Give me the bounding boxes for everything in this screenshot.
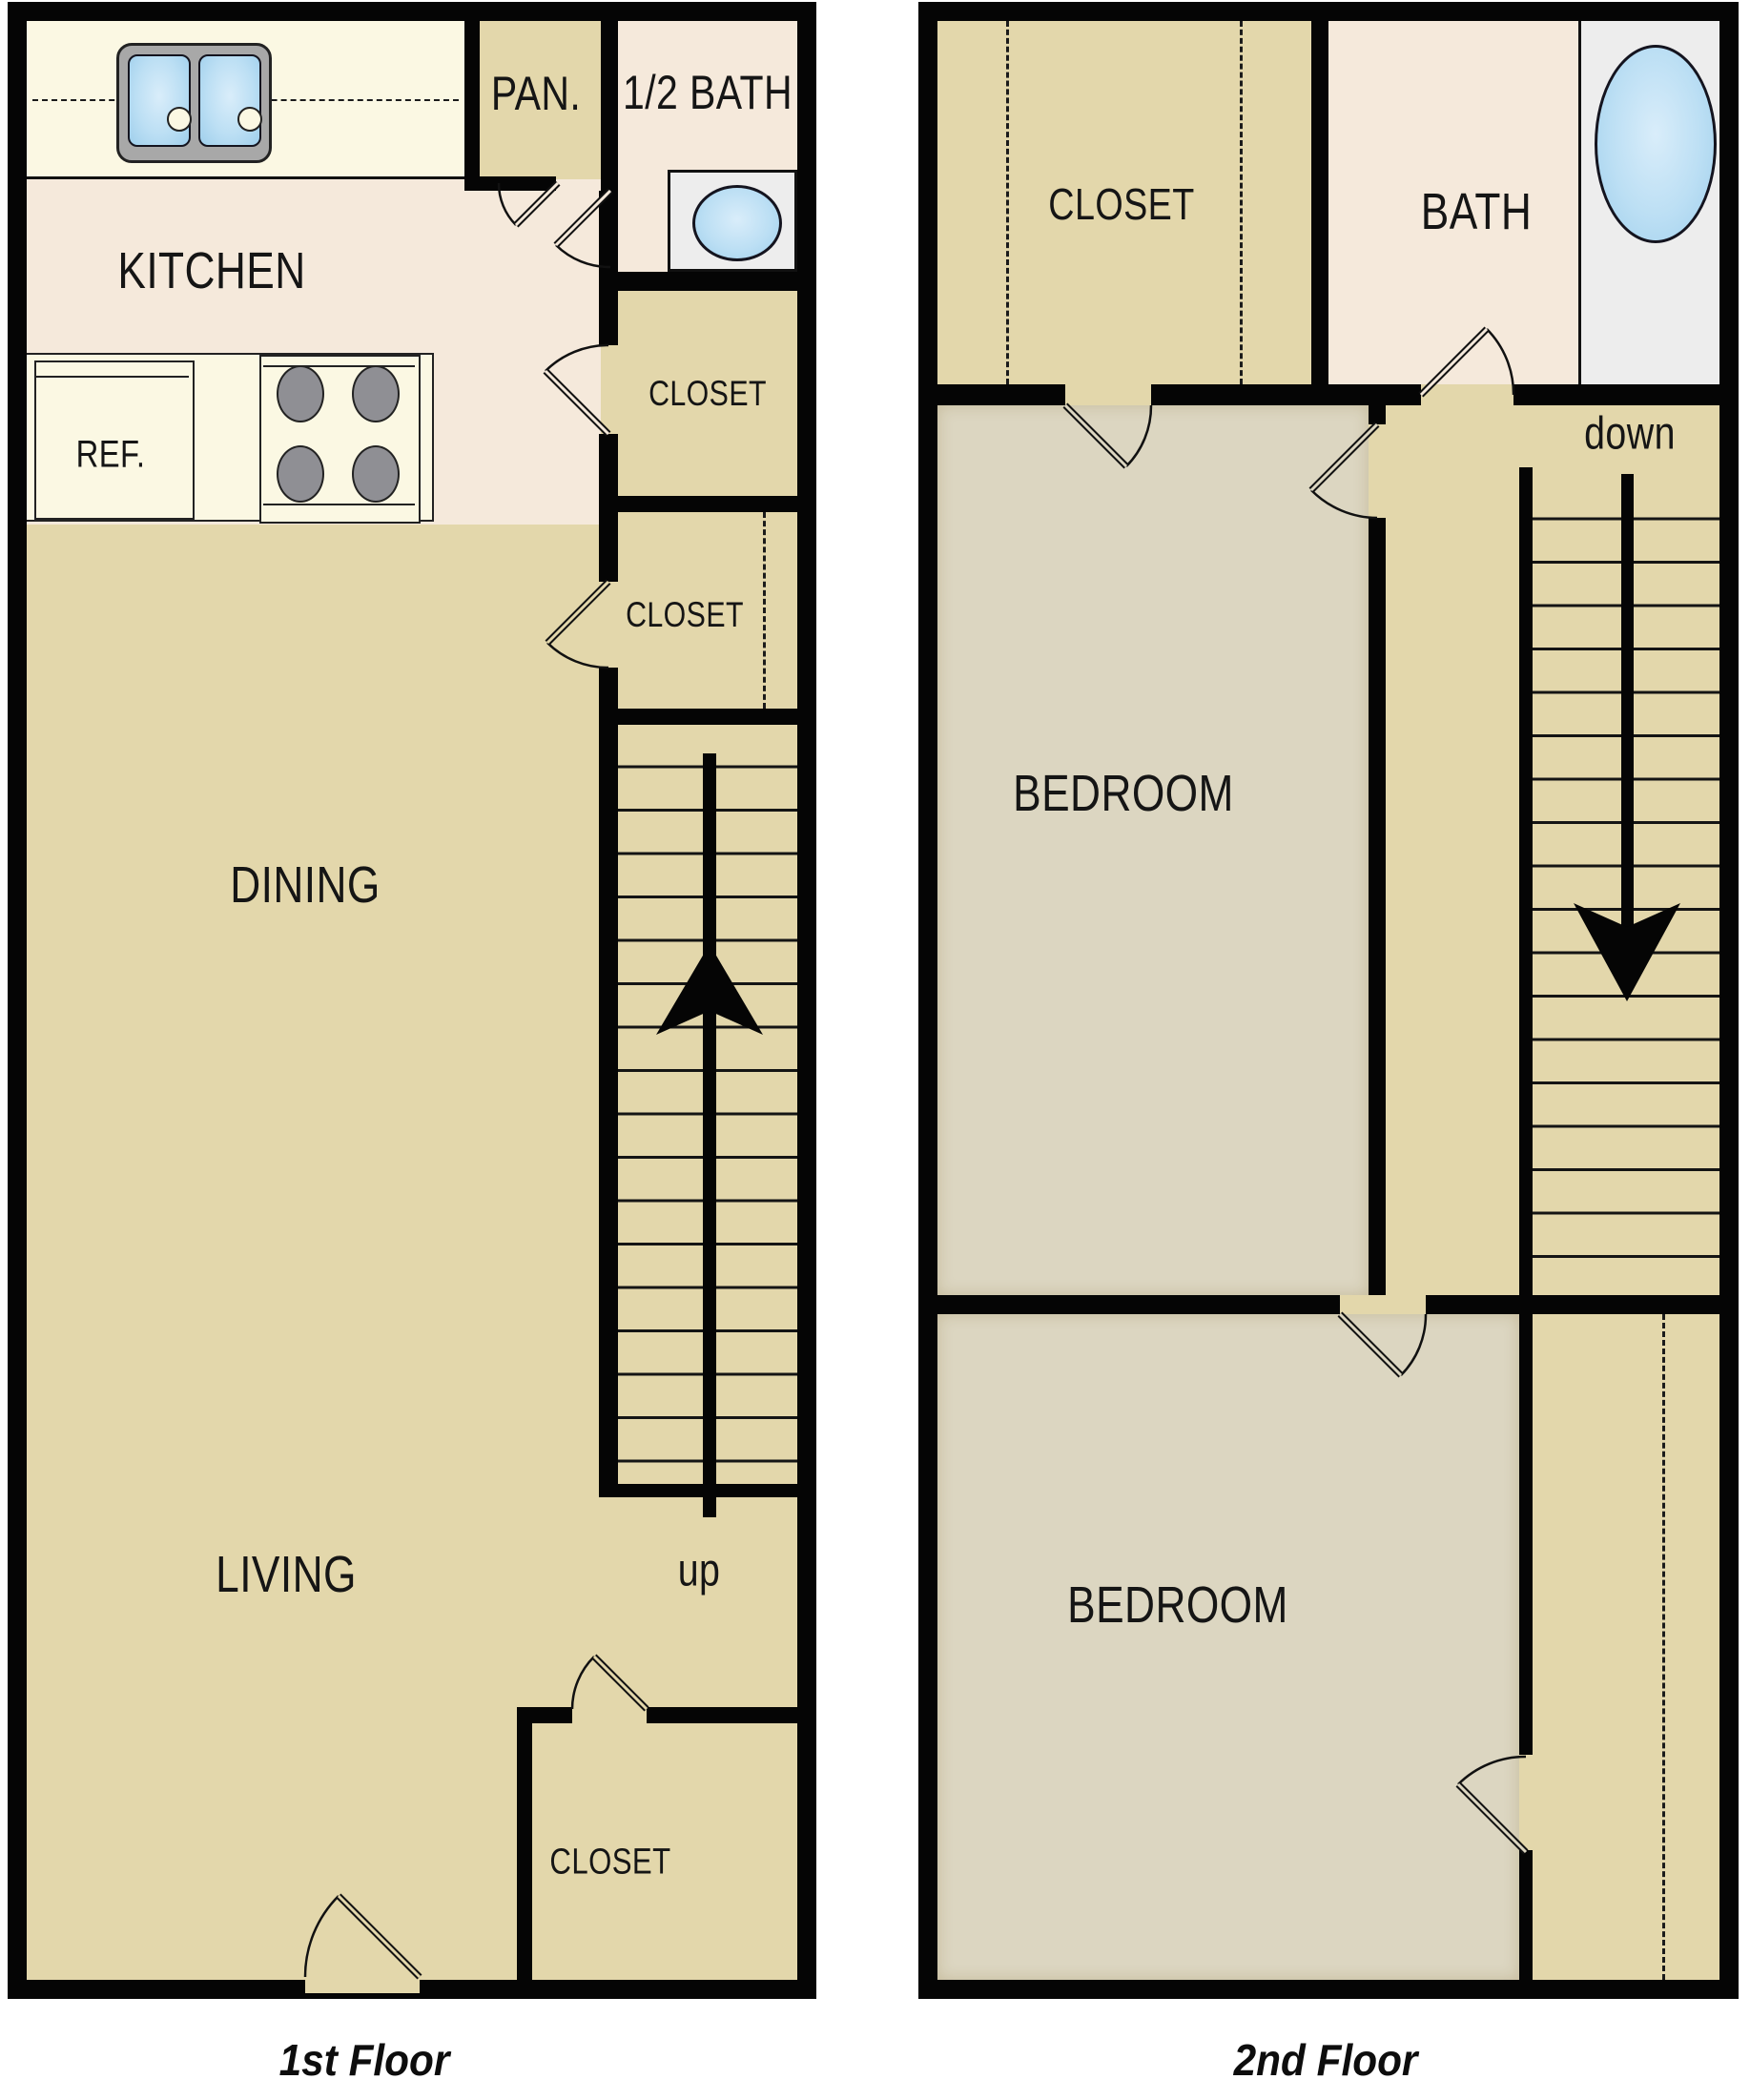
room-label-bedroom-rear: BEDROOM: [1067, 1575, 1288, 1635]
sink-basin-left: [128, 54, 191, 147]
floor1-plan: KITCHEN PAN. 1/2 BATH CLOSET CLOSET DINI…: [8, 2, 816, 1999]
stove-edge-bottom: [263, 504, 415, 505]
room-label-living: LIVING: [216, 1545, 357, 1604]
closet-stairs-wall: [618, 709, 797, 725]
stairwell-left-wall: [1519, 467, 1533, 1295]
door-leaf-inner: [547, 582, 608, 643]
floor2-plan: CLOSET BATH down BEDROOM BEDROOM: [918, 2, 1739, 1999]
bedroom-rear-right-wall: [1519, 1314, 1533, 1755]
burner: [352, 445, 400, 503]
bedroom-rear-right-wall: [1519, 1850, 1533, 1980]
room-label-closet: CLOSET: [1048, 178, 1194, 230]
stairs-up-divider: [703, 753, 716, 1517]
room-label-entry-closet: CLOSET: [549, 1843, 670, 1884]
refrigerator-door-line: [36, 376, 189, 378]
closet-bottom-wall: [1151, 384, 1328, 405]
stairs-down-label: down: [1584, 408, 1676, 461]
tub-divider-line: [1578, 21, 1581, 384]
hall-column-wall: [599, 434, 618, 582]
sink-drain-left: [167, 107, 192, 132]
pantry-left-wall: [464, 21, 480, 191]
closet-rod-line: [1240, 21, 1243, 384]
burner: [352, 365, 400, 422]
bedroom-rear-floor: [937, 1314, 1519, 1980]
stairs-down-divider: [1621, 474, 1634, 930]
closet-bath-wall: [1311, 21, 1328, 405]
door-leaf-inner: [594, 1657, 647, 1709]
floor1-caption: 1st Floor: [279, 2034, 450, 2086]
mid-floor-wall: [1426, 1295, 1719, 1314]
room-label-kitchen: KITCHEN: [117, 241, 305, 300]
sink-basin-right: [198, 54, 261, 147]
bedroom-front-floor: [937, 405, 1369, 1295]
closet-rod-line: [763, 512, 766, 709]
bedroom-front-right-wall: [1369, 405, 1386, 424]
stove-edge-top: [263, 365, 415, 367]
closet-divider-wall: [618, 496, 797, 512]
hall-column-wall: [599, 668, 618, 1497]
door-arc: [547, 643, 608, 668]
pantry-bottom-wall: [464, 176, 556, 191]
hall-column-wall: [599, 191, 618, 345]
half-bath-sink: [692, 185, 782, 261]
burner: [277, 445, 324, 503]
room-label-pantry: PAN.: [491, 66, 581, 121]
entry-door-opening: [305, 1961, 420, 1993]
half-bath-left-wall: [601, 21, 618, 191]
mid-floor-wall: [937, 1295, 1340, 1314]
room-label-bedroom-front: BEDROOM: [1013, 764, 1234, 823]
room-label-closet-upper: CLOSET: [649, 374, 767, 414]
door-leaf: [594, 1657, 647, 1709]
door-leaf: [547, 582, 608, 643]
burner: [277, 365, 324, 422]
sink-drain-right: [237, 107, 262, 132]
bath-bottom-wall: [1513, 384, 1719, 405]
floor2-caption: 2nd Floor: [1234, 2034, 1418, 2086]
stairs-bottom-wall: [599, 1484, 797, 1497]
room-label-half-bath: 1/2 BATH: [623, 65, 793, 120]
entry-closet-left-wall: [517, 1707, 532, 1980]
closet-bottom-wall: [937, 384, 1065, 405]
door-arc: [572, 1657, 594, 1709]
bedroom-front-right-wall: [1369, 518, 1386, 1295]
bath-bottom-wall: [1328, 384, 1421, 405]
closet-rod-line: [1662, 1314, 1665, 1980]
entry-closet-top-wall: [517, 1707, 572, 1723]
room-label-bath: BATH: [1421, 182, 1532, 241]
closet-rod-line: [1006, 21, 1009, 384]
room-label-dining: DINING: [230, 855, 380, 915]
half-bath-closet-wall: [618, 272, 797, 291]
room-label-closet-lower: CLOSET: [626, 595, 744, 635]
fridge-label: REF.: [76, 434, 146, 477]
stairs-up-label: up: [678, 1545, 721, 1597]
entry-closet-top-wall: [647, 1707, 797, 1723]
bathtub: [1595, 45, 1717, 243]
